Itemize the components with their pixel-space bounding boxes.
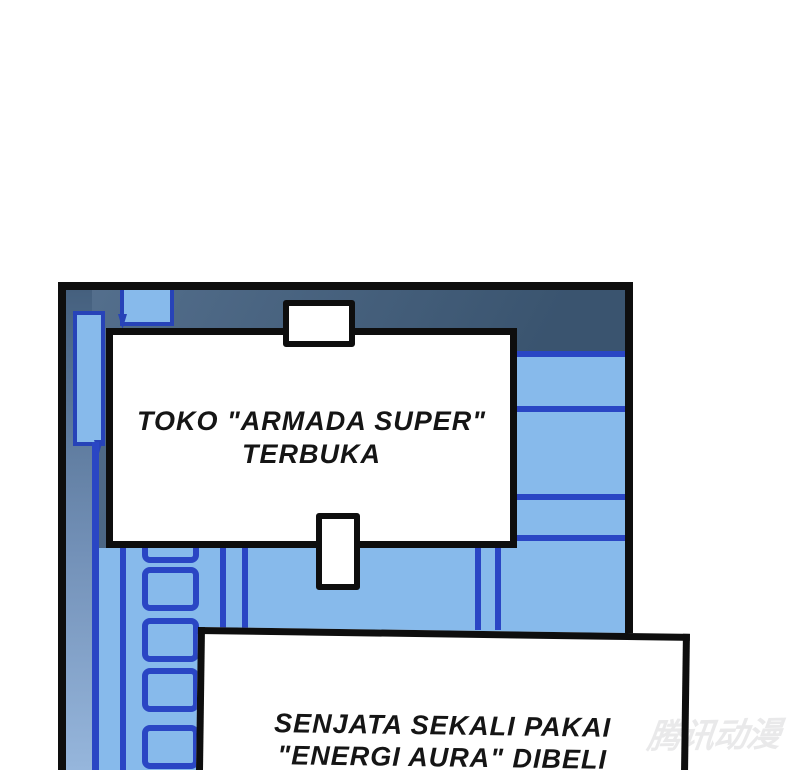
comic-page: TOKO "ARMADA SUPER" TERBUKA SENJATA SEKA… (0, 0, 800, 770)
caption-text-line2: "ENERGI AURA" DIBELI (277, 739, 607, 770)
wall-seam-line (92, 442, 99, 770)
wall-seam-line (220, 548, 226, 628)
window-pane (142, 567, 199, 611)
wall-top-block (120, 290, 174, 326)
signboard-caption: TOKO "ARMADA SUPER" TERBUKA (106, 328, 517, 548)
wall-column-block (73, 311, 105, 446)
window-pane (142, 618, 199, 662)
wall-seam-line (120, 548, 126, 770)
wall-seam-line (242, 548, 248, 628)
signboard-text-line2: TERBUKA (242, 438, 381, 471)
window-pane (142, 725, 199, 769)
tencent-comics-watermark: 腾讯动漫 (645, 707, 783, 758)
wall-seam-line (475, 544, 481, 630)
caption-text-line1: SENJATA SEKALI PAKAI (274, 707, 611, 744)
signboard-bottom-connector (316, 513, 360, 590)
caption-box: SENJATA SEKALI PAKAI "ENERGI AURA" DIBEL… (196, 627, 690, 770)
signboard-text-line1: TOKO "ARMADA SUPER" (137, 405, 486, 438)
window-pane (142, 668, 199, 712)
signboard-top-connector (283, 300, 355, 347)
wall-seam-line (495, 544, 501, 630)
